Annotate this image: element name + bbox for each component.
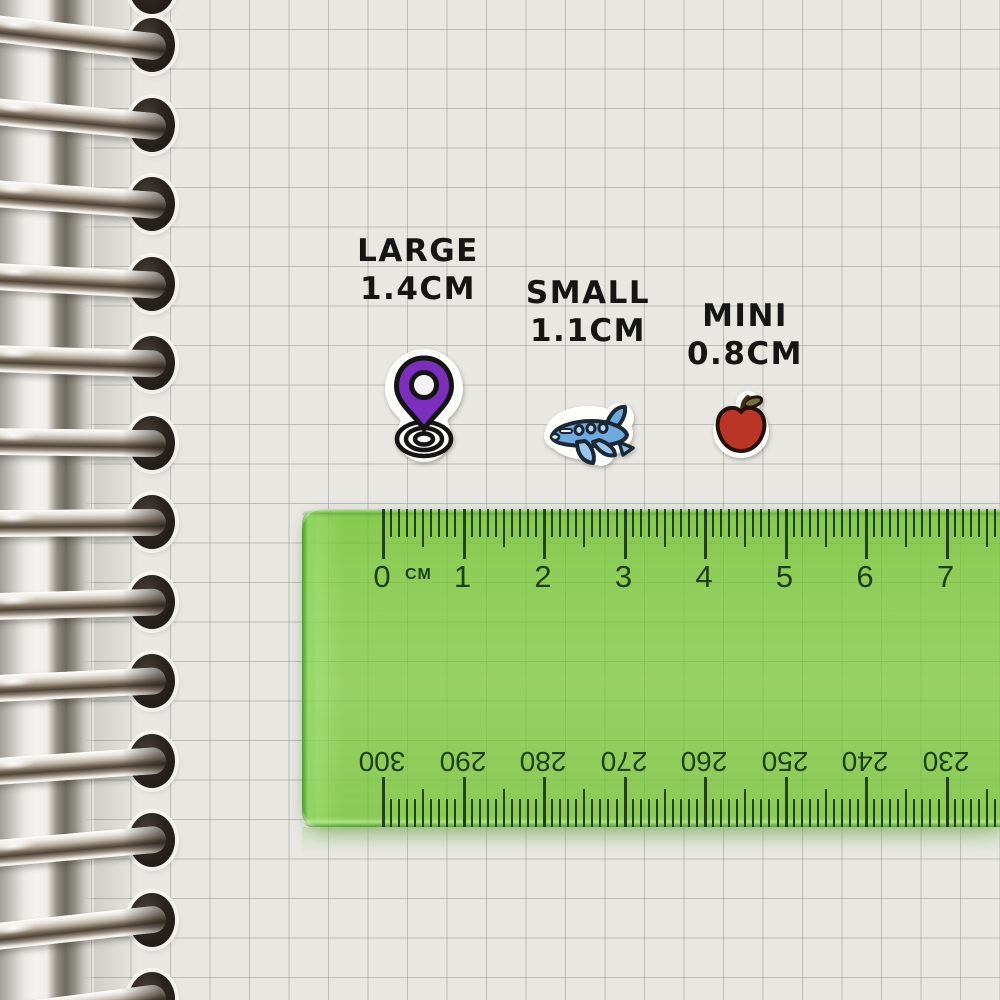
cm-tick <box>463 509 466 559</box>
cm-tick <box>575 509 577 537</box>
mm-tick <box>720 799 722 827</box>
mm-tick <box>624 777 627 827</box>
cm-tick <box>905 509 907 547</box>
mm-tick <box>777 799 779 827</box>
mm-tick <box>857 799 859 827</box>
mm-tick <box>809 799 811 827</box>
cm-tick <box>696 509 698 537</box>
mm-tick <box>712 799 714 827</box>
cm-tick <box>599 509 601 537</box>
mm-tick <box>583 789 585 827</box>
mm-tick <box>664 789 666 827</box>
cm-tick <box>954 509 956 537</box>
ruler-bottom-number: 250 <box>749 745 821 777</box>
ruler-top-number: 7 <box>914 559 978 595</box>
cm-tick <box>640 509 642 537</box>
label-mini-name: MINI <box>635 297 855 335</box>
cm-tick <box>978 509 980 537</box>
cm-tick <box>390 509 392 537</box>
cm-tick <box>962 509 964 537</box>
cm-tick <box>986 509 988 547</box>
ruler: CM 01234567 300290280270260250240230 <box>302 509 1000 827</box>
cm-tick <box>841 509 843 537</box>
ruler-bottom-number: 290 <box>427 745 499 777</box>
mm-tick <box>463 777 466 827</box>
airplane-icon <box>543 400 637 468</box>
cm-tick <box>454 509 456 537</box>
cm-tick <box>752 509 754 537</box>
mm-tick <box>760 799 762 827</box>
cm-tick <box>527 509 529 537</box>
cm-tick <box>921 509 923 537</box>
ruler-top-number: 6 <box>833 559 897 595</box>
mm-tick <box>946 777 949 827</box>
cm-tick <box>825 509 827 547</box>
binder-ring <box>0 509 166 537</box>
cm-tick <box>704 509 707 559</box>
ruler-top-number: 4 <box>672 559 736 595</box>
mm-tick <box>728 799 730 827</box>
mm-tick <box>471 799 473 827</box>
mm-tick <box>527 799 529 827</box>
mm-tick <box>414 799 416 827</box>
cm-tick <box>567 509 569 537</box>
mm-tick <box>487 799 489 827</box>
ruler-bottom-number: 300 <box>346 745 418 777</box>
mm-tick <box>768 799 770 827</box>
mm-tick <box>938 799 940 827</box>
mm-tick <box>841 799 843 827</box>
mm-tick <box>632 799 634 827</box>
cm-tick <box>495 509 497 537</box>
mm-tick <box>398 799 400 827</box>
mm-tick <box>889 799 891 827</box>
ruler-bottom-number: 230 <box>910 745 982 777</box>
mm-tick <box>479 799 481 827</box>
cm-tick <box>382 509 385 559</box>
label-large-name: LARGE <box>308 232 528 270</box>
mm-tick <box>978 799 980 827</box>
cm-tick <box>728 509 730 537</box>
mm-tick <box>913 799 915 827</box>
mm-tick <box>422 789 424 827</box>
cm-tick <box>406 509 408 537</box>
mm-tick <box>736 799 738 827</box>
mm-tick <box>382 777 385 827</box>
mm-tick <box>672 799 674 827</box>
cm-tick <box>809 509 811 537</box>
ruler-left-edge <box>302 509 316 827</box>
cm-tick <box>970 509 972 537</box>
mm-tick <box>865 777 868 827</box>
cm-tick <box>446 509 448 537</box>
cm-tick <box>648 509 650 537</box>
cm-tick <box>672 509 674 537</box>
cm-tick <box>632 509 634 537</box>
binder-ring <box>0 345 166 378</box>
cm-tick <box>857 509 859 537</box>
cm-tick <box>616 509 618 537</box>
mm-tick <box>640 799 642 827</box>
cm-tick <box>720 509 722 537</box>
cm-tick <box>744 509 746 547</box>
label-mini: MINI 0.8CM <box>635 297 855 373</box>
mm-tick <box>551 799 553 827</box>
binder-ring <box>0 427 166 456</box>
mm-tick <box>970 799 972 827</box>
ruler-reflection <box>302 827 1000 853</box>
cm-tick <box>471 509 473 537</box>
cm-tick <box>519 509 521 537</box>
cm-tick <box>688 509 690 537</box>
label-mini-size: 0.8CM <box>635 335 855 373</box>
ruler-top-number: 5 <box>753 559 817 595</box>
cm-tick <box>889 509 891 537</box>
cm-tick <box>865 509 868 559</box>
mm-tick <box>454 799 456 827</box>
ruler-top-number: 0 <box>350 559 414 595</box>
cm-tick <box>414 509 416 537</box>
cm-tick <box>833 509 835 537</box>
ruler-top-number: 3 <box>592 559 656 595</box>
mm-tick <box>390 799 392 827</box>
cm-tick <box>817 509 819 537</box>
ruler-bottom-number: 280 <box>507 745 579 777</box>
mm-tick <box>575 799 577 827</box>
cm-tick <box>591 509 593 537</box>
cm-tick <box>777 509 779 537</box>
mm-tick <box>535 799 537 827</box>
mm-tick <box>825 789 827 827</box>
mm-tick <box>986 789 988 827</box>
cm-tick <box>946 509 949 559</box>
mm-tick <box>752 799 754 827</box>
mm-tick <box>503 789 505 827</box>
cm-tick <box>938 509 940 537</box>
cm-tick <box>559 509 561 537</box>
mm-tick <box>648 799 650 827</box>
mm-tick <box>495 799 497 827</box>
apple-icon <box>712 391 772 459</box>
cm-tick <box>422 509 424 547</box>
mm-tick <box>849 799 851 827</box>
cm-tick <box>712 509 714 537</box>
cm-tick <box>551 509 553 537</box>
cm-tick <box>430 509 432 537</box>
mm-tick <box>607 799 609 827</box>
cm-tick <box>511 509 513 537</box>
mm-tick <box>688 799 690 827</box>
cm-tick <box>503 509 505 547</box>
ruler-top-number: 2 <box>511 559 575 595</box>
cm-tick <box>736 509 738 537</box>
mm-tick <box>519 799 521 827</box>
mm-tick <box>833 799 835 827</box>
mm-tick <box>962 799 964 827</box>
mm-tick <box>897 799 899 827</box>
mm-tick <box>543 777 546 827</box>
cm-tick <box>760 509 762 537</box>
cm-tick <box>583 509 585 547</box>
notebook-photo: LARGE 1.4CM SMALL 1.1CM MINI 0.8CM <box>0 0 1000 1000</box>
ruler-bottom-number: 240 <box>829 745 901 777</box>
mm-tick <box>954 799 956 827</box>
mm-tick <box>905 789 907 827</box>
mm-tick <box>785 777 788 827</box>
cm-tick <box>849 509 851 537</box>
cm-tick <box>994 509 996 537</box>
cm-tick <box>897 509 899 537</box>
mm-tick <box>704 777 707 827</box>
mm-tick <box>567 799 569 827</box>
cm-tick <box>793 509 795 537</box>
cm-tick <box>607 509 609 537</box>
cm-tick <box>624 509 627 559</box>
binder-ring <box>0 588 166 620</box>
mm-tick <box>994 799 996 827</box>
cm-tick <box>913 509 915 537</box>
mm-tick <box>599 799 601 827</box>
cm-tick <box>785 509 788 559</box>
cm-tick <box>438 509 440 537</box>
cm-tick <box>487 509 489 537</box>
cm-tick <box>680 509 682 537</box>
cm-tick <box>801 509 803 537</box>
cm-tick <box>664 509 666 547</box>
mm-tick <box>438 799 440 827</box>
mm-tick <box>881 799 883 827</box>
mm-tick <box>616 799 618 827</box>
mm-tick <box>801 799 803 827</box>
ruler-bottom-number: 260 <box>668 745 740 777</box>
cm-tick <box>398 509 400 537</box>
ruler-bottom-number: 270 <box>588 745 660 777</box>
mm-tick <box>559 799 561 827</box>
mm-tick <box>680 799 682 827</box>
mm-tick <box>873 799 875 827</box>
mm-tick <box>696 799 698 827</box>
mm-tick <box>929 799 931 827</box>
mm-tick <box>406 799 408 827</box>
mm-tick <box>430 799 432 827</box>
mm-tick <box>446 799 448 827</box>
cm-tick <box>768 509 770 537</box>
cm-tick <box>656 509 658 537</box>
mm-tick <box>817 799 819 827</box>
cm-tick <box>535 509 537 537</box>
location-pin-icon <box>383 345 465 463</box>
mm-tick <box>511 799 513 827</box>
mm-tick <box>656 799 658 827</box>
ruler-top-number: 1 <box>431 559 495 595</box>
cm-tick <box>479 509 481 537</box>
cm-tick <box>873 509 875 537</box>
mm-tick <box>591 799 593 827</box>
cm-tick <box>881 509 883 537</box>
mm-tick <box>793 799 795 827</box>
cm-tick <box>929 509 931 537</box>
cm-tick <box>543 509 546 559</box>
mm-tick <box>921 799 923 827</box>
mm-tick <box>744 789 746 827</box>
